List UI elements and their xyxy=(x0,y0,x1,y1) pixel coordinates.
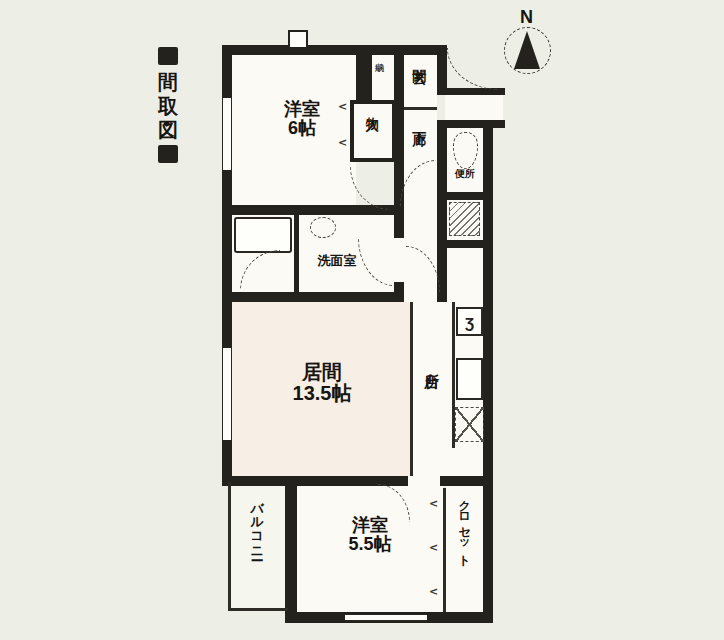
wall xyxy=(222,45,447,55)
bedroom1-size: 6帖 xyxy=(262,119,342,138)
washbasin-icon xyxy=(310,217,336,238)
compass-north-label: N xyxy=(520,8,533,27)
closet-label: クロセット xyxy=(458,491,471,560)
window xyxy=(222,98,232,170)
door-gap xyxy=(408,476,440,486)
fold-door-chevron-icon: < xyxy=(338,136,347,149)
compass-arrow-icon xyxy=(514,31,540,69)
fridge-space-icon xyxy=(455,407,484,442)
wall xyxy=(285,480,297,620)
window xyxy=(222,348,232,440)
bedroom2-size: 5.5帖 xyxy=(328,535,412,554)
bedroom2-name: 洋室 xyxy=(328,516,412,535)
fold-door-chevron-icon: < xyxy=(429,541,438,554)
pipe-shaft xyxy=(288,30,308,47)
balcony-rail xyxy=(228,482,231,611)
wall xyxy=(294,212,299,292)
floorplan-page: { "title_chars": ["間", "取", "図"], "compa… xyxy=(0,0,724,640)
wall xyxy=(356,45,372,102)
legend-bottom-square xyxy=(158,145,178,163)
window xyxy=(345,614,427,621)
wall xyxy=(222,292,414,302)
living-label: 居間 13.5帖 xyxy=(270,362,374,404)
closet-fold-line xyxy=(443,488,446,612)
door-gap xyxy=(394,238,404,282)
living-name: 居間 xyxy=(270,362,374,383)
stove-icon: Ʒ xyxy=(456,307,483,336)
wall xyxy=(437,120,505,128)
washer-space-icon xyxy=(449,202,480,236)
wall xyxy=(437,192,493,200)
bedroom1-door-arc xyxy=(350,166,390,210)
bathtub-icon xyxy=(234,217,292,253)
wall xyxy=(437,240,483,248)
washroom-label: 洗面室 xyxy=(299,254,375,268)
wall xyxy=(437,122,447,302)
bedroom1-label: 洋室 6帖 xyxy=(262,100,342,138)
entrance-area xyxy=(404,52,437,107)
balcony-rail xyxy=(228,608,288,611)
front-door-arc xyxy=(447,48,499,90)
entrance-step-line xyxy=(404,107,437,110)
bedroom2-label: 洋室 5.5帖 xyxy=(328,516,412,554)
storage-box xyxy=(350,100,396,162)
wall xyxy=(222,476,493,486)
fold-door-chevron-icon: < xyxy=(429,497,438,510)
kitchen-divider-line xyxy=(410,302,413,476)
title-char-1: 間 xyxy=(157,69,179,96)
wall xyxy=(483,128,493,623)
bedroom1-name: 洋室 xyxy=(262,100,342,119)
title-char-3: 図 xyxy=(157,117,179,144)
kitchen-top-area xyxy=(447,248,483,302)
sink-icon xyxy=(456,358,483,400)
title-char-2: 取 xyxy=(157,93,179,120)
shoe-storage-area xyxy=(372,52,394,100)
entrance-step-area xyxy=(445,95,503,120)
wall xyxy=(437,88,505,95)
living-size: 13.5帖 xyxy=(270,383,374,404)
toilet-label: 便所 xyxy=(447,169,483,180)
corridor-area xyxy=(404,110,437,302)
door-gap xyxy=(404,292,437,302)
fold-door-chevron-icon: < xyxy=(429,585,438,598)
wall xyxy=(222,205,404,215)
legend-top-square xyxy=(158,47,178,65)
balcony-label: バルコニー xyxy=(250,494,264,553)
